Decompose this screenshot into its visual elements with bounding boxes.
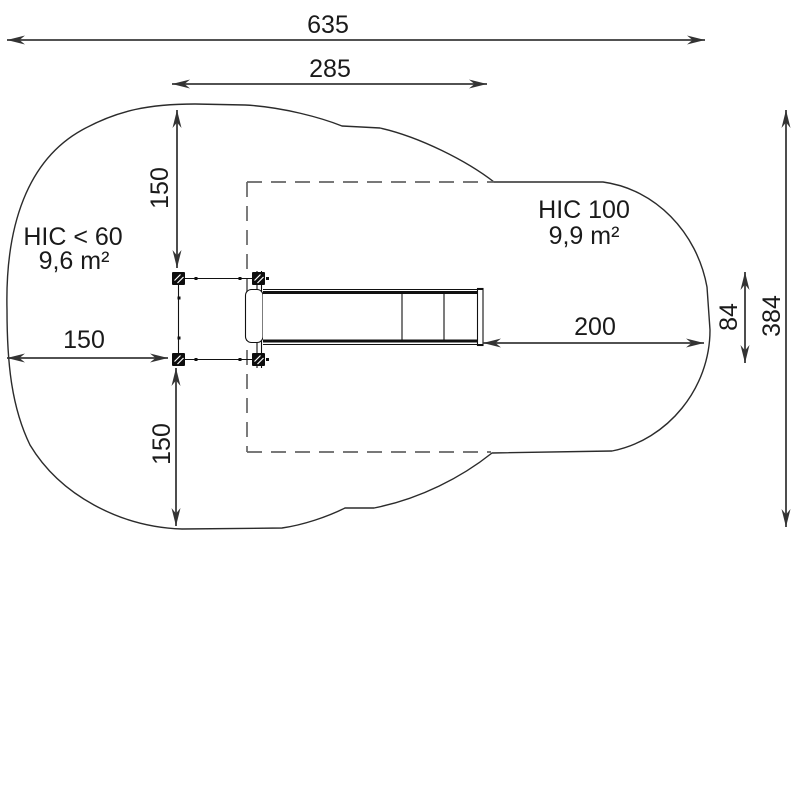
hic60-area: 9,6 m²: [39, 247, 110, 275]
dim-total-depth-label: 384: [758, 295, 786, 337]
dim-margin-top-label: 150: [146, 167, 174, 209]
dim-margin-top: 150: [146, 110, 182, 268]
dim-slide-clearance-label: 200: [574, 313, 616, 341]
slide-body-fill: [263, 289, 483, 346]
equipment-plan: [172, 271, 483, 368]
hic100-title: HIC 100: [538, 196, 630, 224]
zone-label-hic100: HIC 100 9,9 m²: [538, 196, 630, 250]
post-bottom-left: [172, 353, 185, 366]
dim-margin-left: 150: [7, 326, 168, 363]
slide-entry-panel: [246, 290, 264, 343]
dim-total-width-label: 635: [307, 11, 349, 39]
safety-zone-drawing: 635 285 150 150 150 200 84: [0, 0, 800, 800]
dim-upper-span-label: 285: [309, 55, 351, 83]
dim-total-width: 635: [7, 11, 705, 45]
dim-slide-clearance: 200: [483, 313, 704, 348]
post-bottom-right: [252, 353, 265, 366]
zone-label-hic60: HIC < 60 9,6 m²: [23, 223, 122, 275]
post-top-left: [172, 272, 185, 285]
drawing-page: 635 285 150 150 150 200 84: [0, 0, 800, 800]
slide-end-cap: [478, 289, 484, 346]
dim-equipment-depth: 84: [715, 272, 750, 363]
dim-equipment-depth-label: 84: [715, 303, 743, 331]
dim-total-depth: 384: [758, 110, 791, 527]
dim-margin-left-label: 150: [63, 326, 105, 354]
dim-upper-span: 285: [172, 55, 487, 89]
dim-margin-bottom-label: 150: [148, 423, 176, 465]
post-top-right: [252, 272, 265, 285]
hic100-area: 9,9 m²: [549, 222, 620, 250]
dim-margin-bottom: 150: [148, 368, 181, 526]
